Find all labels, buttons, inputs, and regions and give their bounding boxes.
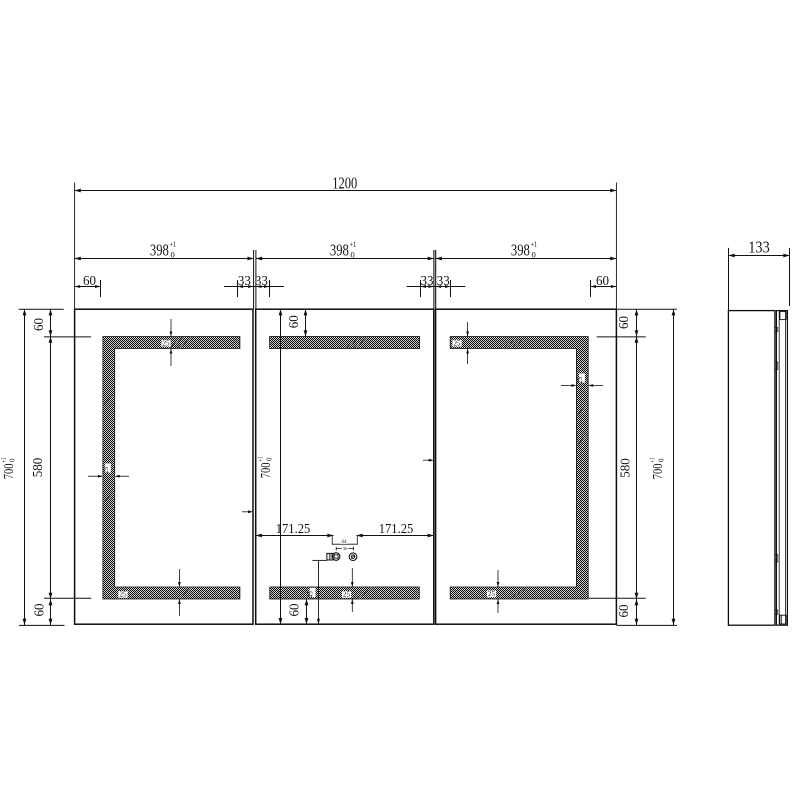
- svg-text:33: 33: [238, 274, 251, 289]
- svg-text:64: 64: [342, 540, 348, 545]
- svg-text:171.25: 171.25: [276, 522, 311, 537]
- svg-text:+1: +1: [350, 239, 357, 249]
- svg-text:700: 700: [259, 463, 274, 479]
- svg-text:45: 45: [307, 591, 315, 599]
- svg-text:580: 580: [618, 458, 633, 478]
- svg-text:700: 700: [2, 464, 17, 480]
- svg-text:+1: +1: [531, 239, 538, 249]
- svg-text:398: 398: [511, 241, 530, 260]
- svg-text:+1: +1: [649, 457, 657, 463]
- svg-text:60: 60: [286, 315, 301, 328]
- svg-text:0: 0: [351, 250, 355, 260]
- svg-text:33: 33: [255, 274, 268, 289]
- svg-text:60: 60: [616, 316, 631, 329]
- svg-text:60: 60: [83, 274, 96, 289]
- svg-text:0: 0: [171, 250, 175, 260]
- svg-text:+1: +1: [170, 239, 177, 249]
- svg-text:171.25: 171.25: [379, 522, 414, 537]
- svg-text:25: 25: [488, 590, 496, 598]
- svg-text:0: 0: [532, 250, 536, 260]
- svg-text:0: 0: [265, 457, 273, 461]
- svg-text:0: 0: [9, 458, 17, 462]
- svg-text:25: 25: [102, 466, 110, 474]
- svg-text:25: 25: [576, 376, 584, 384]
- svg-text:25: 25: [163, 339, 171, 347]
- svg-text:580: 580: [30, 458, 45, 478]
- svg-text:60: 60: [31, 603, 46, 616]
- svg-text:1200: 1200: [332, 174, 357, 193]
- svg-text:25: 25: [120, 591, 128, 599]
- svg-text:700: 700: [651, 464, 666, 480]
- svg-text:33: 33: [421, 274, 434, 289]
- svg-text:+1: +1: [0, 457, 8, 463]
- svg-text:60: 60: [31, 318, 46, 331]
- svg-text:25: 25: [343, 591, 351, 599]
- svg-text:25: 25: [454, 339, 462, 347]
- svg-text:398: 398: [150, 241, 169, 260]
- svg-text:30: 30: [343, 546, 348, 551]
- svg-text:+1: +1: [257, 456, 265, 462]
- svg-text:60: 60: [287, 603, 302, 616]
- svg-text:60: 60: [616, 604, 631, 617]
- svg-text:33: 33: [437, 274, 450, 289]
- svg-text:133: 133: [748, 238, 770, 257]
- svg-text:398: 398: [330, 241, 349, 260]
- svg-text:60: 60: [596, 274, 609, 289]
- svg-text:0: 0: [658, 458, 666, 462]
